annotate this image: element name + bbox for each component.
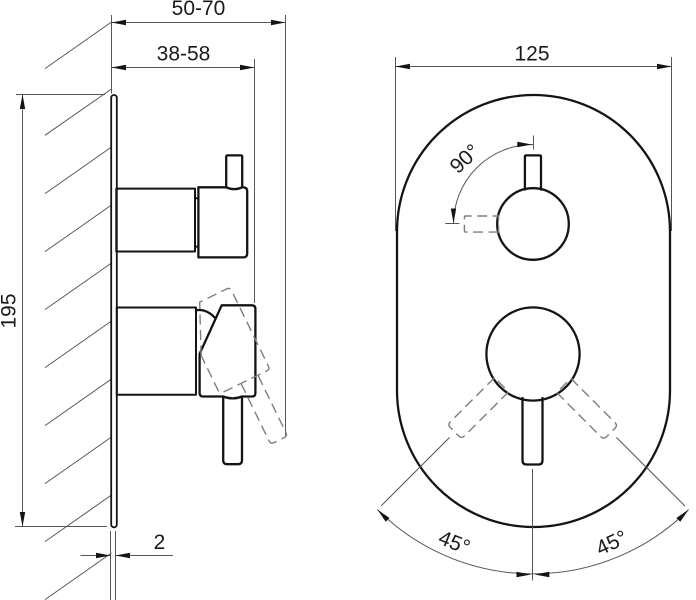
svg-text:38-58: 38-58 xyxy=(157,43,211,66)
svg-text:50-70: 50-70 xyxy=(172,0,226,20)
svg-text:90°: 90° xyxy=(446,140,485,178)
svg-text:2: 2 xyxy=(154,531,166,554)
svg-text:125: 125 xyxy=(514,42,549,65)
svg-text:45°: 45° xyxy=(593,526,632,560)
svg-text:195: 195 xyxy=(0,293,21,328)
svg-text:45°: 45° xyxy=(435,526,473,559)
